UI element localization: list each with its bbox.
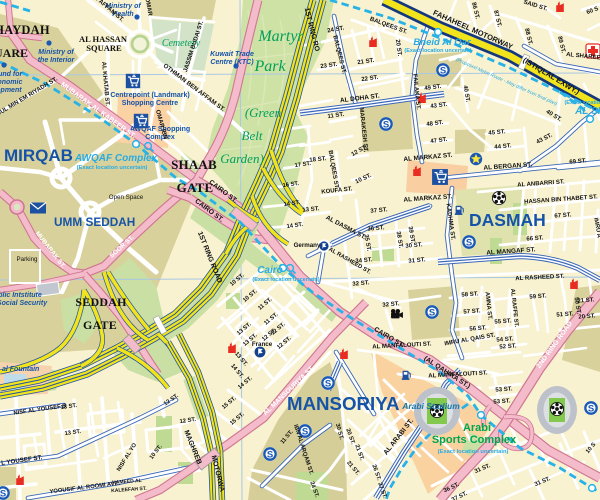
svg-text:Complex: Complex xyxy=(145,134,175,141)
svg-text:(Exact location uncertain): (Exact location uncertain) xyxy=(252,277,319,283)
svg-text:Fund for: Fund for xyxy=(0,71,23,78)
svg-text:(Exact location uncertain): (Exact location uncertain) xyxy=(77,165,148,171)
svg-text:Kuwait Trade: Kuwait Trade xyxy=(210,51,254,58)
svg-text:MANSORIYA: MANSORIYA xyxy=(287,393,400,414)
svg-text:Arabi: Arabi xyxy=(463,422,491,434)
svg-text:MIRQAB: MIRQAB xyxy=(4,146,73,165)
svg-text:GATE: GATE xyxy=(83,318,117,332)
svg-text:Bneid Al Qar: Bneid Al Qar xyxy=(413,37,471,48)
svg-text:(Exact location uncertain): (Exact location uncertain) xyxy=(404,48,471,54)
svg-text:Parking: Parking xyxy=(17,256,39,263)
svg-text:(Exact location uncertain): (Exact location uncertain) xyxy=(438,449,509,455)
svg-text:HAYDAH: HAYDAH xyxy=(0,23,50,37)
svg-text:53 ST.: 53 ST. xyxy=(495,386,513,393)
svg-text:57 ST.: 57 ST. xyxy=(463,308,481,315)
svg-text:Shopping Centre: Shopping Centre xyxy=(122,100,178,107)
svg-text:56 ST.: 56 ST. xyxy=(469,325,487,332)
svg-text:France: France xyxy=(252,341,273,348)
svg-text:blic Intstitute: blic Intstitute xyxy=(0,292,42,299)
svg-text:al Fountain: al Fountain xyxy=(2,366,39,373)
svg-text:58 ST.: 58 ST. xyxy=(461,291,479,298)
svg-text:Social Security: Social Security xyxy=(0,300,48,307)
svg-text:SHAAB: SHAAB xyxy=(171,157,217,172)
svg-text:54 ST.: 54 ST. xyxy=(496,336,514,343)
svg-text:67 ST.: 67 ST. xyxy=(554,212,572,219)
svg-text:Belt: Belt xyxy=(242,128,263,143)
svg-text:55 ST.: 55 ST. xyxy=(494,318,512,325)
svg-text:UARE: UARE xyxy=(0,46,28,60)
svg-text:Cairo: Cairo xyxy=(257,265,283,276)
svg-text:DASMAH: DASMAH xyxy=(469,210,546,230)
svg-text:66 ST.: 66 ST. xyxy=(526,235,544,242)
svg-text:Germany: Germany xyxy=(294,242,321,249)
svg-text:51 ST.: 51 ST. xyxy=(556,311,574,318)
svg-text:Ministry of: Ministry of xyxy=(38,49,74,56)
svg-text:Sports Complex: Sports Complex xyxy=(432,434,517,446)
svg-text:20 ST.: 20 ST. xyxy=(578,313,596,320)
svg-text:Arabi Stadium: Arabi Stadium xyxy=(401,401,460,411)
svg-text:59 ST.: 59 ST. xyxy=(529,293,547,300)
svg-text:Martyr: Martyr xyxy=(257,28,304,45)
svg-text:52 ST.: 52 ST. xyxy=(499,343,517,350)
svg-text:21 ST.: 21 ST. xyxy=(577,297,595,304)
svg-text:SQUARE: SQUARE xyxy=(86,43,122,53)
svg-text:Open Space: Open Space xyxy=(109,194,144,201)
svg-text:Park: Park xyxy=(253,58,286,75)
svg-text:SEDDAH: SEDDAH xyxy=(75,295,127,309)
svg-text:economic: economic xyxy=(0,79,22,86)
svg-text:the Interior: the Interior xyxy=(38,57,76,64)
svg-text:UMM SEDDAH: UMM SEDDAH xyxy=(54,215,135,229)
svg-text:AWQAF Complex: AWQAF Complex xyxy=(74,153,158,164)
svg-text:elopment: elopment xyxy=(0,87,22,94)
svg-text:Garden): Garden) xyxy=(220,151,264,166)
svg-text:Centre (KTC): Centre (KTC) xyxy=(210,59,254,66)
svg-text:Centrepoint (Landmark): Centrepoint (Landmark) xyxy=(110,92,189,99)
svg-text:53 ST.: 53 ST. xyxy=(493,398,511,405)
svg-text:AL SH: AL SH xyxy=(574,106,600,117)
svg-text:(Green: (Green xyxy=(245,105,281,120)
